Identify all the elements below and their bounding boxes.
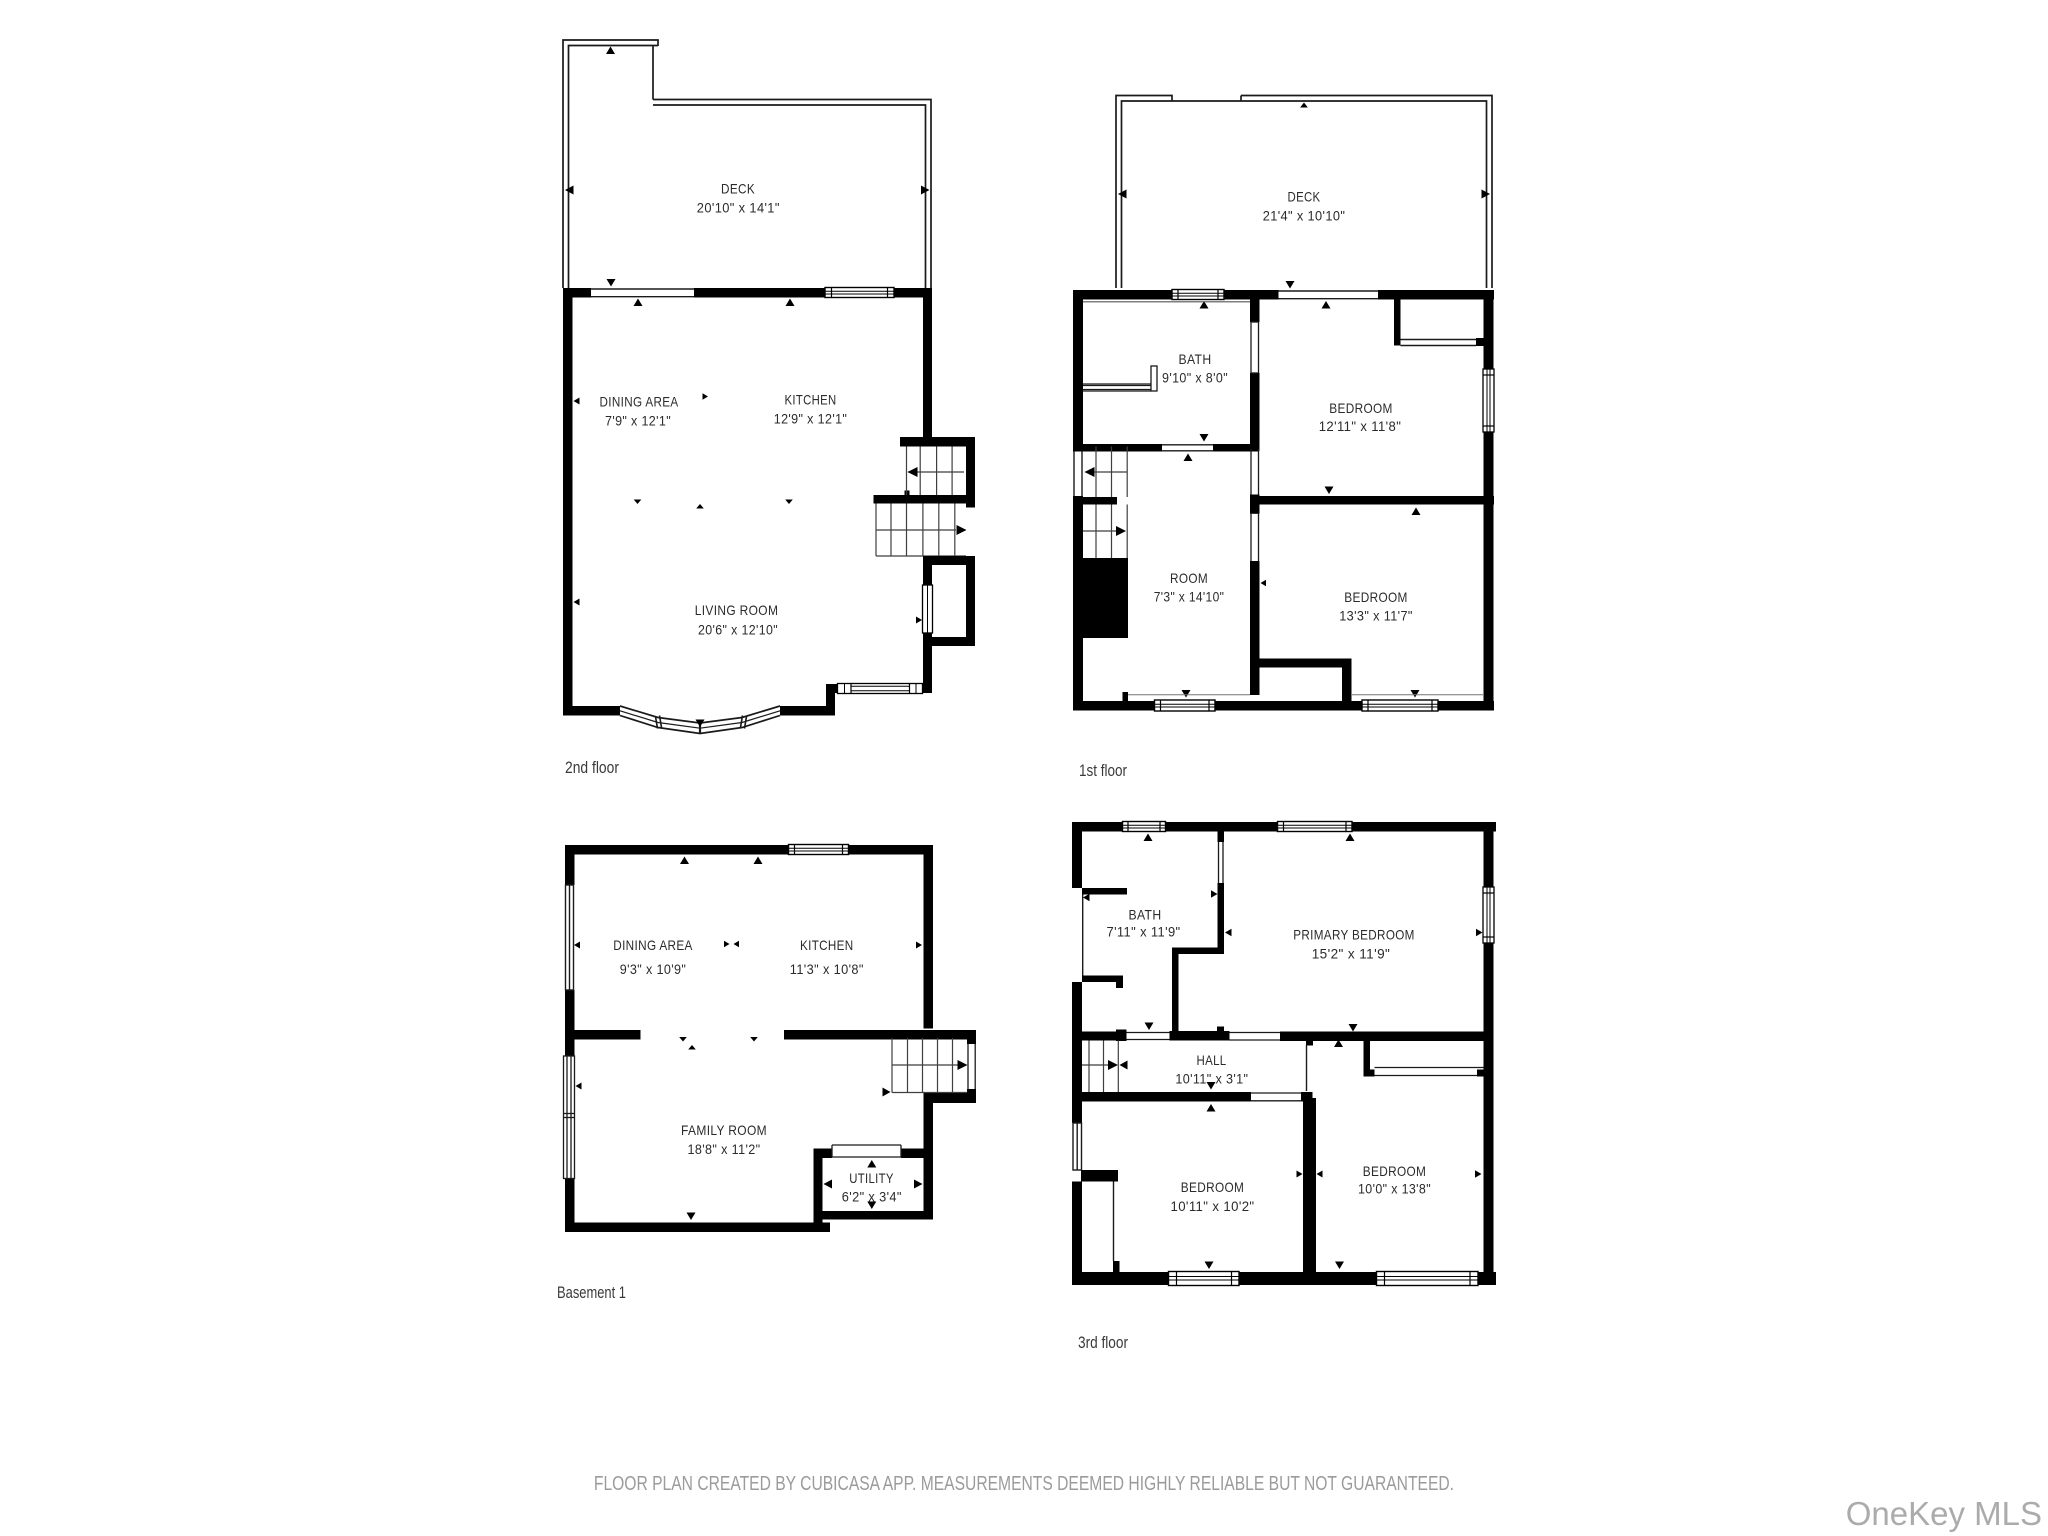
svg-text:DECK: DECK: [721, 182, 755, 197]
svg-text:20'6" x 12'10": 20'6" x 12'10": [698, 623, 778, 638]
svg-text:BATH: BATH: [1129, 908, 1162, 923]
svg-text:7'11" x 11'9": 7'11" x 11'9": [1107, 924, 1181, 939]
svg-text:18'8" x 11'2": 18'8" x 11'2": [688, 1142, 761, 1157]
svg-text:1st floor: 1st floor: [1079, 761, 1127, 780]
svg-text:DECK: DECK: [1288, 190, 1321, 205]
svg-text:BATH: BATH: [1179, 352, 1212, 367]
svg-text:KITCHEN: KITCHEN: [800, 938, 854, 953]
svg-text:BEDROOM: BEDROOM: [1363, 1164, 1427, 1179]
svg-text:UTILITY: UTILITY: [849, 1171, 894, 1186]
svg-text:13'3" x 11'7": 13'3" x 11'7": [1339, 609, 1413, 624]
svg-text:12'9" x 12'1": 12'9" x 12'1": [774, 411, 848, 426]
svg-text:12'11" x 11'8": 12'11" x 11'8": [1319, 419, 1402, 434]
svg-text:FAMILY ROOM: FAMILY ROOM: [681, 1123, 767, 1138]
svg-text:LIVING ROOM: LIVING ROOM: [695, 603, 779, 618]
svg-text:7'3" x 14'10": 7'3" x 14'10": [1154, 590, 1225, 605]
svg-text:BEDROOM: BEDROOM: [1344, 590, 1408, 605]
svg-text:9'10" x 8'0": 9'10" x 8'0": [1162, 371, 1228, 386]
svg-text:6'2" x 3'4": 6'2" x 3'4": [842, 1190, 902, 1205]
svg-text:PRIMARY BEDROOM: PRIMARY BEDROOM: [1293, 928, 1415, 943]
svg-text:10'11" x 10'2": 10'11" x 10'2": [1171, 1199, 1255, 1214]
svg-text:Basement 1: Basement 1: [557, 1283, 626, 1302]
svg-text:20'10" x 14'1": 20'10" x 14'1": [697, 201, 780, 216]
svg-text:7'9" x 12'1": 7'9" x 12'1": [605, 413, 671, 428]
svg-text:KITCHEN: KITCHEN: [785, 393, 837, 408]
svg-text:3rd floor: 3rd floor: [1078, 1333, 1128, 1352]
svg-text:21'4" x 10'10": 21'4" x 10'10": [1263, 209, 1346, 224]
svg-text:DINING AREA: DINING AREA: [613, 938, 693, 953]
svg-text:ROOM: ROOM: [1170, 571, 1208, 586]
svg-text:2nd floor: 2nd floor: [565, 758, 619, 777]
svg-text:10'11" x 3'1": 10'11" x 3'1": [1175, 1071, 1248, 1086]
svg-text:10'0" x 13'8": 10'0" x 13'8": [1358, 1182, 1431, 1197]
svg-text:DINING AREA: DINING AREA: [600, 395, 679, 410]
svg-text:BEDROOM: BEDROOM: [1181, 1180, 1245, 1195]
svg-text:15'2" x 11'9": 15'2" x 11'9": [1312, 947, 1391, 962]
svg-text:9'3" x 10'9": 9'3" x 10'9": [620, 962, 687, 977]
svg-text:11'3" x 10'8": 11'3" x 10'8": [790, 962, 864, 977]
svg-text:BEDROOM: BEDROOM: [1329, 401, 1393, 416]
svg-text:HALL: HALL: [1197, 1053, 1227, 1068]
